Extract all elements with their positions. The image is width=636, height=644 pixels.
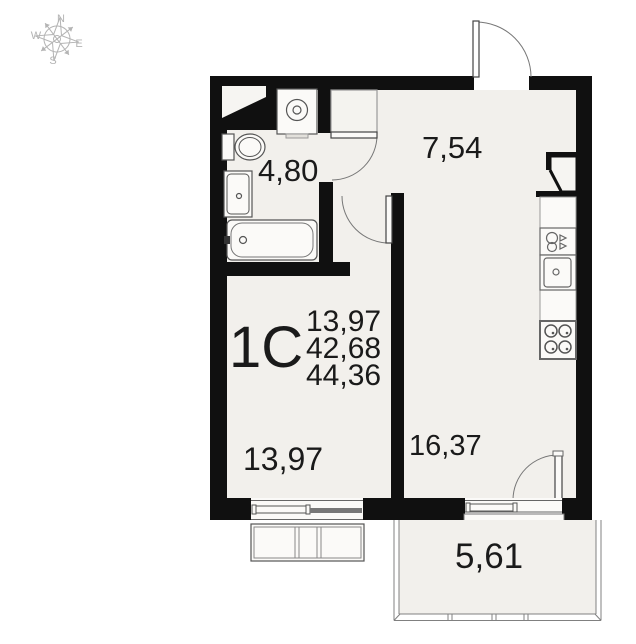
vent-kitchen-bottom-bar — [536, 191, 577, 197]
wall-bathroom-bottom — [226, 262, 350, 276]
kitchen-faucet-panel — [540, 228, 576, 255]
wall-bathroom-right-lower — [319, 182, 333, 262]
bathtub — [224, 220, 317, 260]
wall-bottom-left — [210, 498, 251, 520]
vent-kitchen-left-edge — [546, 156, 551, 170]
stove — [540, 321, 576, 359]
bathroom-sink — [224, 171, 252, 217]
wall-bottom-middle — [363, 498, 465, 520]
balcony-area-label: 5,61 — [455, 537, 523, 576]
unit-total-area: 44,36 — [306, 359, 381, 392]
entrance-door — [473, 21, 531, 90]
kitchen-fixtures — [540, 197, 576, 359]
compass-north-label: N — [57, 13, 65, 25]
compass-east-label: E — [75, 38, 82, 50]
floor-plan: N W E S — [0, 0, 636, 644]
window-bay — [251, 524, 364, 561]
compass: N W E S — [31, 13, 83, 67]
kitchen-sink — [540, 255, 576, 290]
hallway-area-label: 7,54 — [422, 130, 482, 165]
wall-bathroom-right-upper — [318, 90, 331, 133]
wall-bottom-right — [562, 498, 592, 520]
unit-type-label: 1C — [229, 315, 303, 380]
compass-west-label: W — [31, 30, 42, 42]
wall-right — [576, 76, 592, 520]
living-room-window — [251, 498, 364, 561]
living-room-area-label: 13,97 — [243, 441, 323, 477]
floor-plan-svg: N W E S — [0, 0, 636, 644]
hallway-closet — [331, 90, 377, 133]
wall-room-divider — [391, 193, 404, 498]
compass-south-label: S — [49, 55, 56, 67]
bathroom-area-label: 4,80 — [258, 153, 318, 188]
kitchen-area-label: 16,37 — [409, 430, 482, 462]
washing-machine — [277, 89, 317, 138]
